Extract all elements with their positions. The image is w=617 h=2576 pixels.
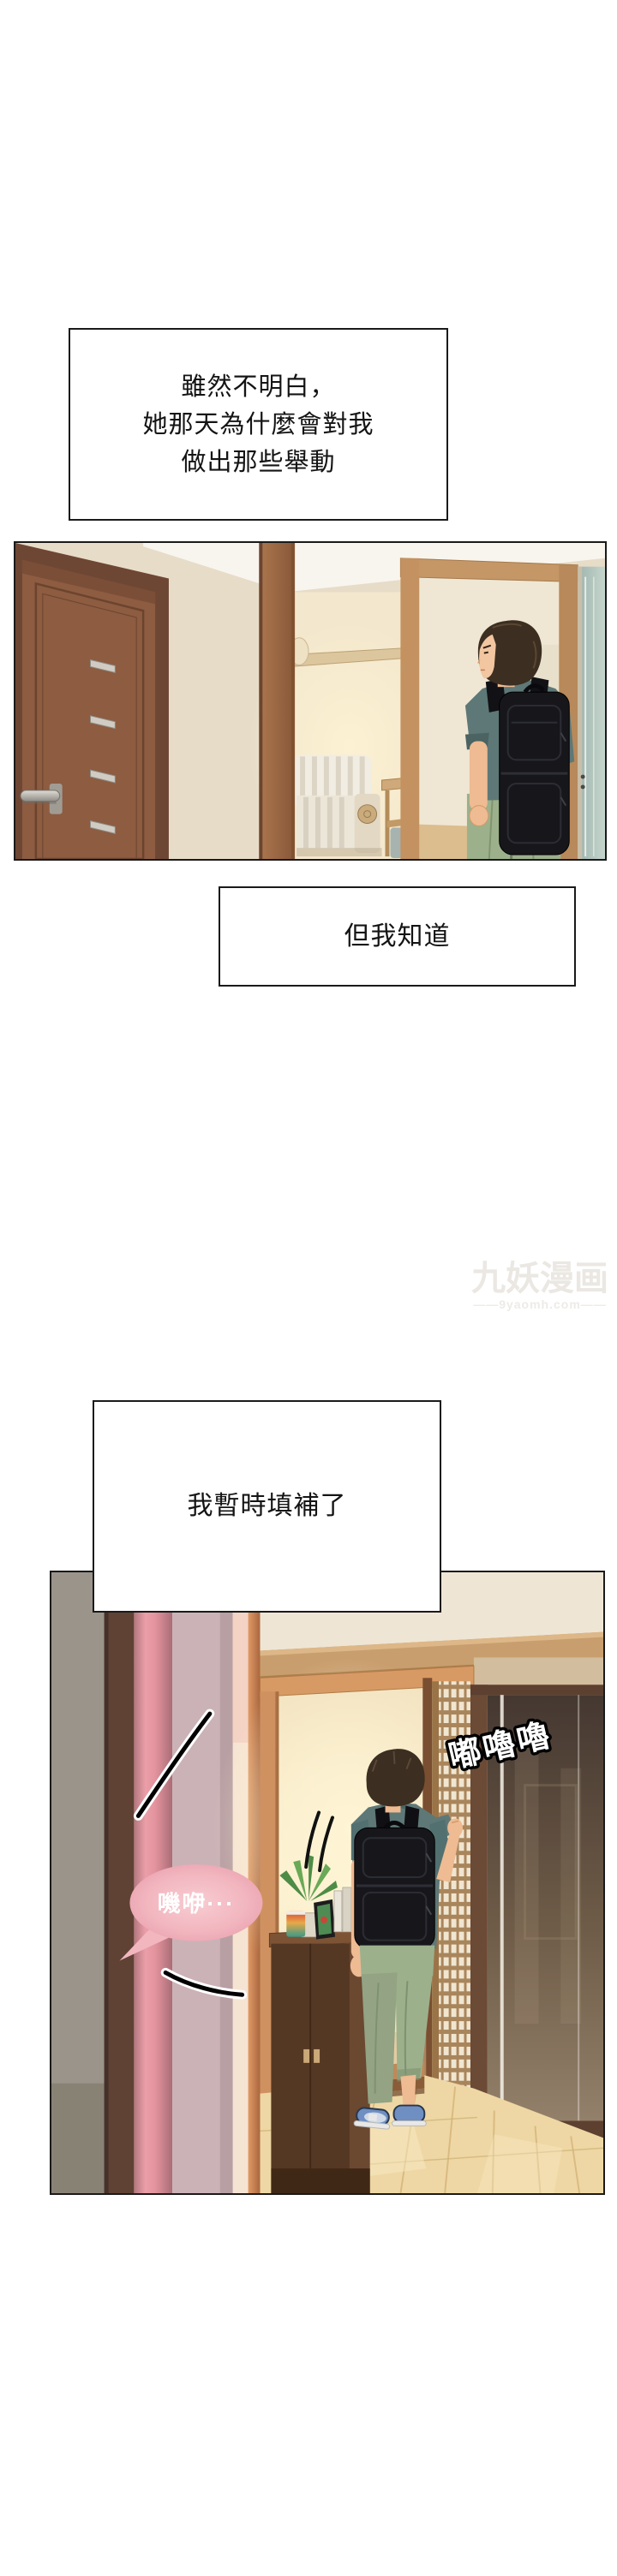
watermark: 九妖漫画 ——9yaomh.com—— bbox=[463, 1261, 617, 1312]
comic-page: 雖然不明白， 她那天為什麼會對我 做出那些舉動 bbox=[0, 0, 617, 2576]
eye bbox=[484, 653, 488, 653]
comic-panel-1 bbox=[14, 541, 607, 861]
speech-bubble-text: 嘰咿··· bbox=[158, 1891, 235, 1917]
striped-sofa bbox=[293, 754, 381, 856]
comic-panel-2: 嘰咿··· 嘟嚕嚕 bbox=[50, 1571, 605, 2195]
caption-2-line-1: 但我知道 bbox=[344, 918, 451, 956]
caption-3-line-1: 我暫時填補了 bbox=[188, 1488, 347, 1525]
caption-box-3: 我暫時填補了 bbox=[93, 1400, 441, 1613]
watermark-logo-text: 九妖漫画 bbox=[463, 1261, 617, 1297]
photo-frame bbox=[314, 1899, 335, 1940]
glass-door bbox=[578, 567, 605, 859]
hall-pillar bbox=[259, 543, 295, 859]
watermark-site-text: ——9yaomh.com—— bbox=[463, 1297, 617, 1312]
colorful-cup bbox=[286, 1911, 305, 1937]
caption-box-2: 但我知道 bbox=[219, 886, 576, 987]
armrest-carving bbox=[358, 805, 377, 824]
panel-1-artwork bbox=[15, 543, 605, 859]
caption-1-line-3: 做出那些舉動 bbox=[181, 444, 335, 481]
character-hair bbox=[367, 1749, 425, 1806]
panel-2-artwork: 嘰咿··· 嘟嚕嚕 bbox=[51, 1572, 603, 2193]
door-handle-screw bbox=[581, 775, 585, 779]
caption-1-line-1: 雖然不明白， bbox=[181, 368, 335, 406]
caption-box-1: 雖然不明白， 她那天為什麼會對我 做出那些舉動 bbox=[69, 328, 448, 521]
left-door bbox=[15, 543, 169, 859]
character-arm bbox=[470, 741, 488, 810]
caption-1-line-2: 她那天為什麼會對我 bbox=[142, 406, 374, 444]
